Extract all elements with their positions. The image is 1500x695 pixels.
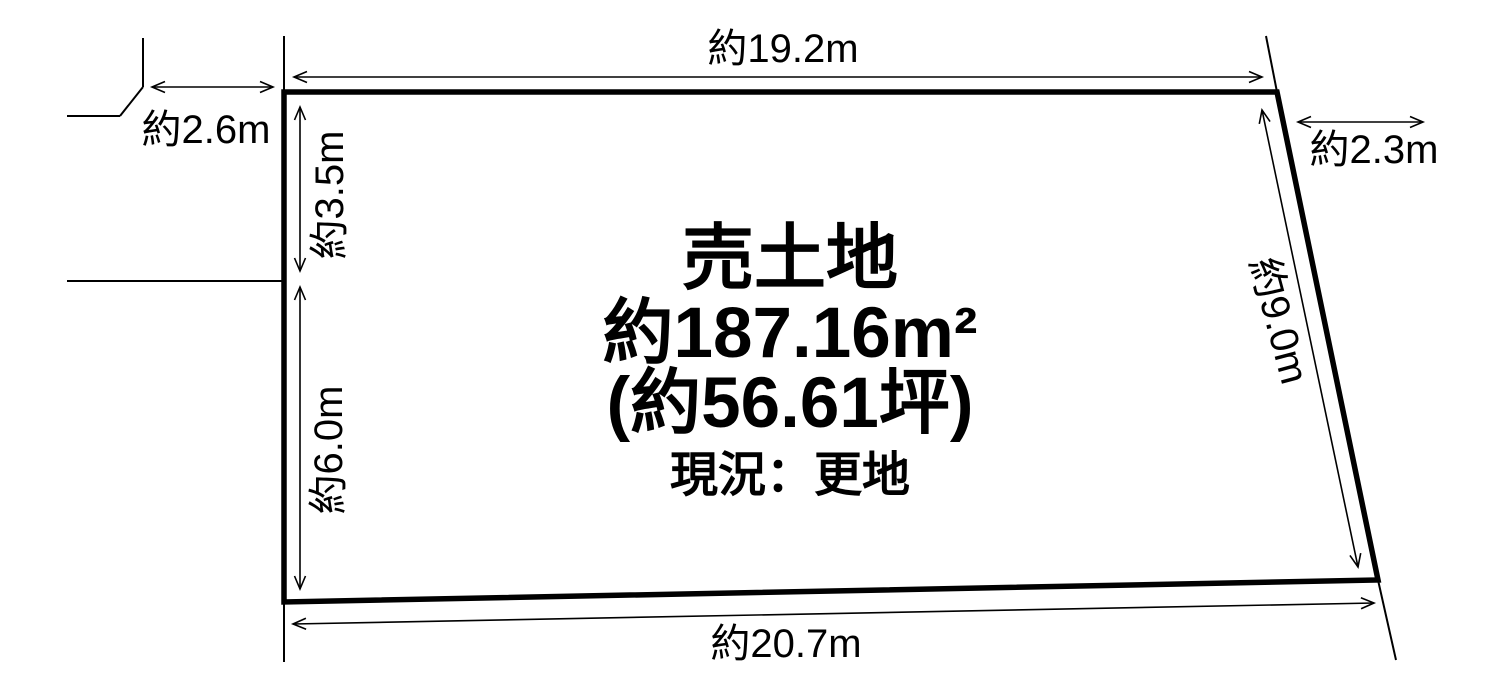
dimension-arrow-bottom bbox=[293, 603, 1374, 624]
plot-area-sqm: 約187.16m² bbox=[603, 294, 978, 373]
land-plot-diagram: 約19.2m 約2.6m 約3.5m 約6.0m 約2.3m 約9.0m 約20… bbox=[0, 0, 1500, 695]
road-line-right-lower-extension bbox=[1378, 580, 1396, 660]
dimension-label-left-lower: 約6.0m bbox=[307, 386, 351, 515]
dimension-label-top-right-offset: 約2.3m bbox=[1310, 128, 1439, 172]
dimension-label-bottom: 約20.7m bbox=[710, 622, 861, 666]
road-line-right-upper-extension bbox=[1266, 36, 1277, 92]
dimension-label-top-left-offset: 約2.6m bbox=[142, 108, 271, 152]
dimension-label-top: 約19.2m bbox=[707, 27, 858, 71]
land-plot-svg: 約19.2m 約2.6m 約3.5m 約6.0m 約2.3m 約9.0m 約20… bbox=[0, 0, 1500, 695]
road-corner-chamfer-line bbox=[120, 87, 143, 116]
dimension-label-left-upper: 約3.5m bbox=[308, 131, 352, 260]
plot-area-tsubo: (約56.61坪) bbox=[607, 364, 974, 443]
plot-status: 現況：更地 bbox=[670, 449, 910, 502]
plot-title: 売土地 bbox=[682, 219, 898, 299]
